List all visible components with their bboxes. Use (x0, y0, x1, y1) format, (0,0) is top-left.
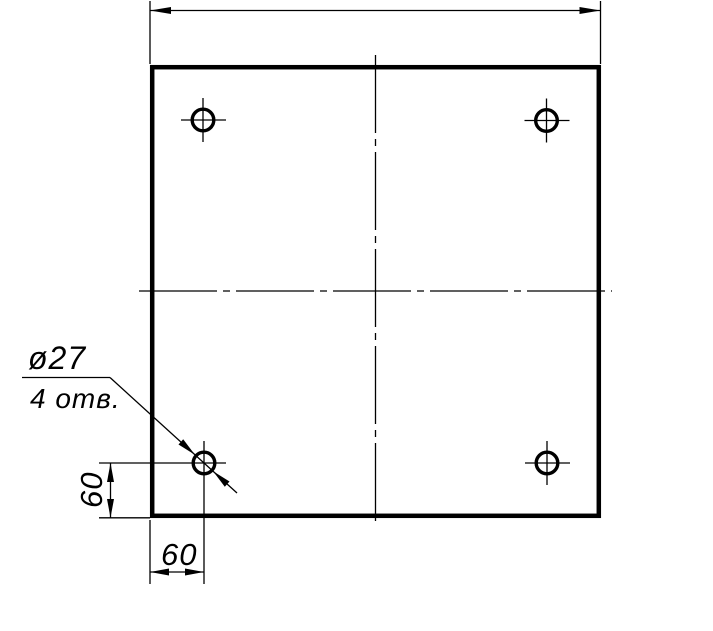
drawing-canvas: ø27 4 отв. 60 60 (0, 0, 713, 631)
left-dim-value: 60 (74, 472, 109, 508)
thin-linework (22, 1, 612, 584)
annotations: ø27 4 отв. 60 60 (28, 340, 197, 572)
callout-count-label: 4 отв. (30, 383, 121, 414)
top-dim-arrow-left (150, 7, 171, 14)
plate-drawing: ø27 4 отв. 60 60 (0, 0, 713, 631)
callout-diameter-label: ø27 (28, 340, 86, 376)
top-dim-arrow-right (580, 7, 601, 14)
bottom-dim-value: 60 (161, 537, 197, 572)
